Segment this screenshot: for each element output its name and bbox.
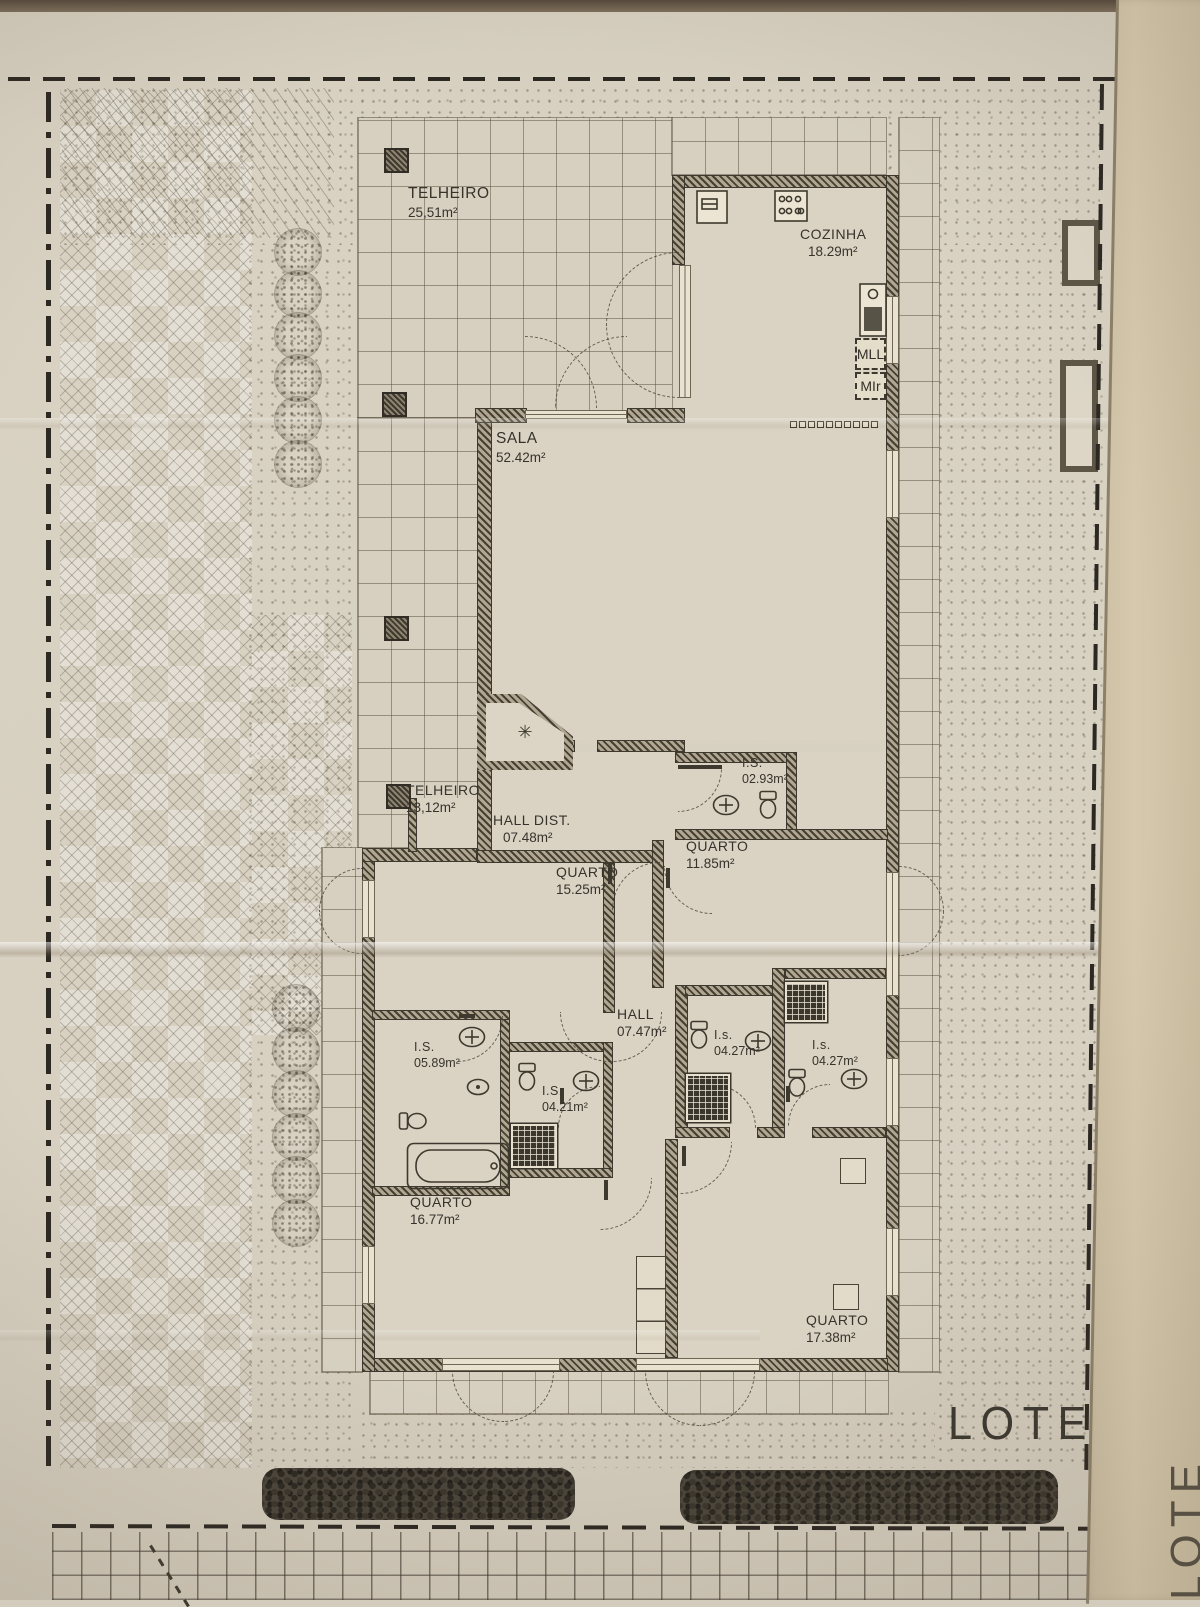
room-label-telheiro-2: TELHEIRO 13,12m² [406, 782, 480, 816]
floor-plan-photo: { "colors": { "paper": "#d8d1c2", "fold_… [0, 0, 1200, 1600]
room-area: 13,12m² [406, 800, 480, 816]
room-name: I.s. [714, 1028, 760, 1042]
room-label-is-0589: I.S. 05.89m² [414, 1040, 460, 1071]
room-area: 16.77m² [410, 1212, 472, 1228]
room-area: 04.27m² [714, 1044, 760, 1058]
room-name: HALL [617, 1006, 667, 1022]
room-label-telheiro-1: TELHEIRO 25,51m² [408, 185, 490, 220]
room-label-is-0421: I.S. 04.21m² [542, 1084, 588, 1115]
room-name: QUARTO [686, 838, 748, 854]
room-area: 18.29m² [800, 244, 867, 260]
room-label-quarto-1738: QUARTO 17.38m² [806, 1312, 868, 1346]
room-name: SALA [496, 430, 546, 448]
labels-layer: TELHEIRO 25,51m² COZINHA 18.29m² SALA 52… [0, 0, 1200, 1600]
dishwasher-box: MLL [855, 338, 886, 370]
lot-1-label: LOTE 1 [948, 1396, 1148, 1450]
room-label-hall-dist: HALL DIST. 07.48m² [493, 812, 571, 846]
room-name: COZINHA [800, 226, 867, 242]
room-name: HALL DIST. [493, 812, 571, 828]
room-label-is-0293: I.S. 02.93m² [742, 756, 788, 787]
room-area: 07.48m² [493, 830, 571, 846]
room-label-cozinha: COZINHA 18.29m² [800, 226, 867, 260]
room-label-quarto-1677: QUARTO 16.77m² [410, 1194, 472, 1228]
room-label-sala: SALA 52.42m² [496, 430, 546, 465]
washer-box: MIr [855, 372, 886, 400]
room-label-quarto-1185: QUARTO 11.85m² [686, 838, 748, 872]
fireplace: ✳ [477, 694, 573, 770]
room-area: 04.21m² [542, 1100, 588, 1114]
room-name: TELHEIRO [406, 782, 480, 798]
room-name: I.S. [542, 1084, 588, 1098]
room-area: 04.27m² [812, 1054, 858, 1068]
room-area: 25,51m² [408, 205, 490, 221]
room-name: QUARTO [806, 1312, 868, 1328]
room-label-hall: HALL 07.47m² [617, 1006, 667, 1040]
room-name: QUARTO [410, 1194, 472, 1210]
dishwasher-label: MLL [857, 346, 884, 362]
fireplace-symbol: ✳ [486, 703, 564, 761]
room-name: I.S. [742, 756, 788, 770]
room-name: I.S. [414, 1040, 460, 1054]
washer-label: MIr [860, 378, 880, 394]
room-label-is-0427-right: I.s. 04.27m² [812, 1038, 858, 1069]
room-name: TELHEIRO [408, 185, 490, 203]
room-label-quarto-1525: QUARTO 15.25m² [556, 864, 618, 898]
room-area: 15.25m² [556, 882, 618, 898]
room-area: 17.38m² [806, 1330, 868, 1346]
room-label-is-0427-left: I.s. 04.27m² [714, 1028, 760, 1059]
room-area: 05.89m² [414, 1056, 460, 1070]
room-area: 02.93m² [742, 772, 788, 786]
room-area: 07.47m² [617, 1024, 667, 1040]
room-name: QUARTO [556, 864, 618, 880]
room-name: I.s. [812, 1038, 858, 1052]
room-area: 11.85m² [686, 856, 748, 872]
room-area: 52.42m² [496, 450, 546, 466]
